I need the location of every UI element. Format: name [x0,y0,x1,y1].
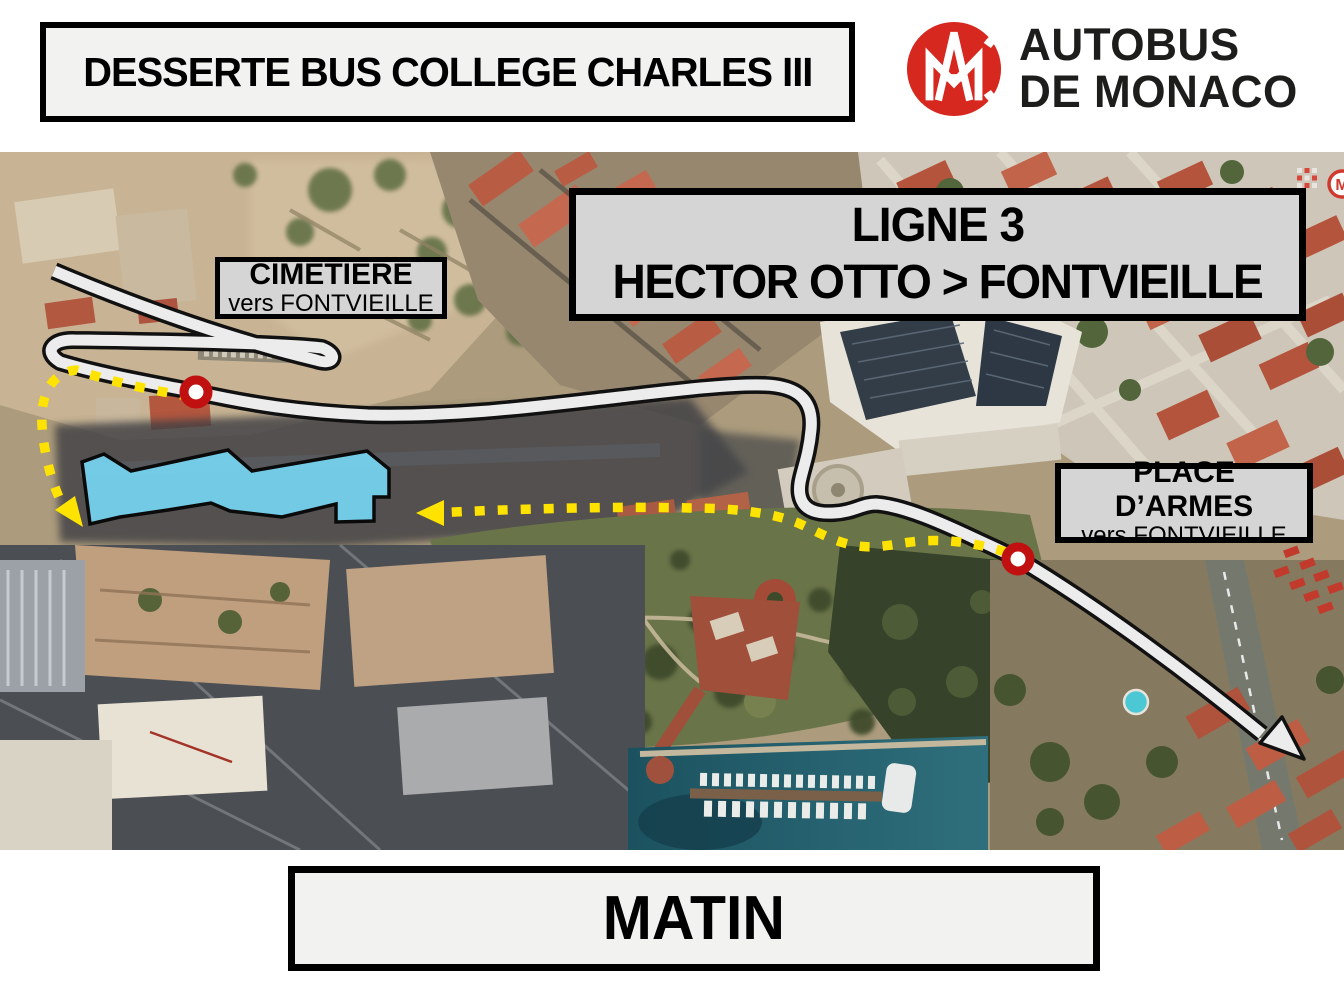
route-line-number: LIGNE 3 [851,198,1024,255]
flyer-page: DESSERTE BUS COLLEGE CHARLES III AUTOBUS… [0,0,1344,1008]
bus-stop-marker-place-darmes [1006,547,1030,571]
route-direction: HECTOR OTTO > FONTVIEILLE [613,255,1263,312]
period-label-box: MATIN [288,866,1100,971]
stop-name: PLACE D’ARMES [1061,456,1307,523]
company-name: AUTOBUS DE MONACO [1019,22,1298,116]
route-title-box: LIGNE 3 HECTOR OTTO > FONTVIEILLE [569,188,1306,321]
stop-label-place-darmes: PLACE D’ARMES vers FONTVIEILLE [1055,463,1313,543]
page-title: DESSERTE BUS COLLEGE CHARLES III [40,22,855,122]
company-logo: AUTOBUS DE MONACO [905,20,1304,118]
stop-name: CIMETIERE [249,258,412,292]
cam-monogram-icon [905,20,1003,118]
profile-letter: M [1335,177,1344,194]
maps-profile-icon: M [1329,171,1344,197]
period-label: MATIN [603,883,785,954]
stop-label-cimetiere: CIMETIERE vers FONTVIEILLE [215,257,447,319]
route-map: M LIGNE 3 HECTOR OTTO > FONTVIEILLE CIME… [0,152,1344,850]
bus-stop-marker-cimetiere [184,380,208,404]
apps-grid-icon [1297,168,1317,188]
company-name-line1: AUTOBUS [1019,22,1298,69]
stop-direction: vers FONTVIEILLE [228,291,433,318]
company-name-line2: DE MONACO [1019,69,1298,116]
stop-direction: vers FONTVIEILLE [1081,523,1286,550]
page-title-text: DESSERTE BUS COLLEGE CHARLES III [83,49,812,96]
